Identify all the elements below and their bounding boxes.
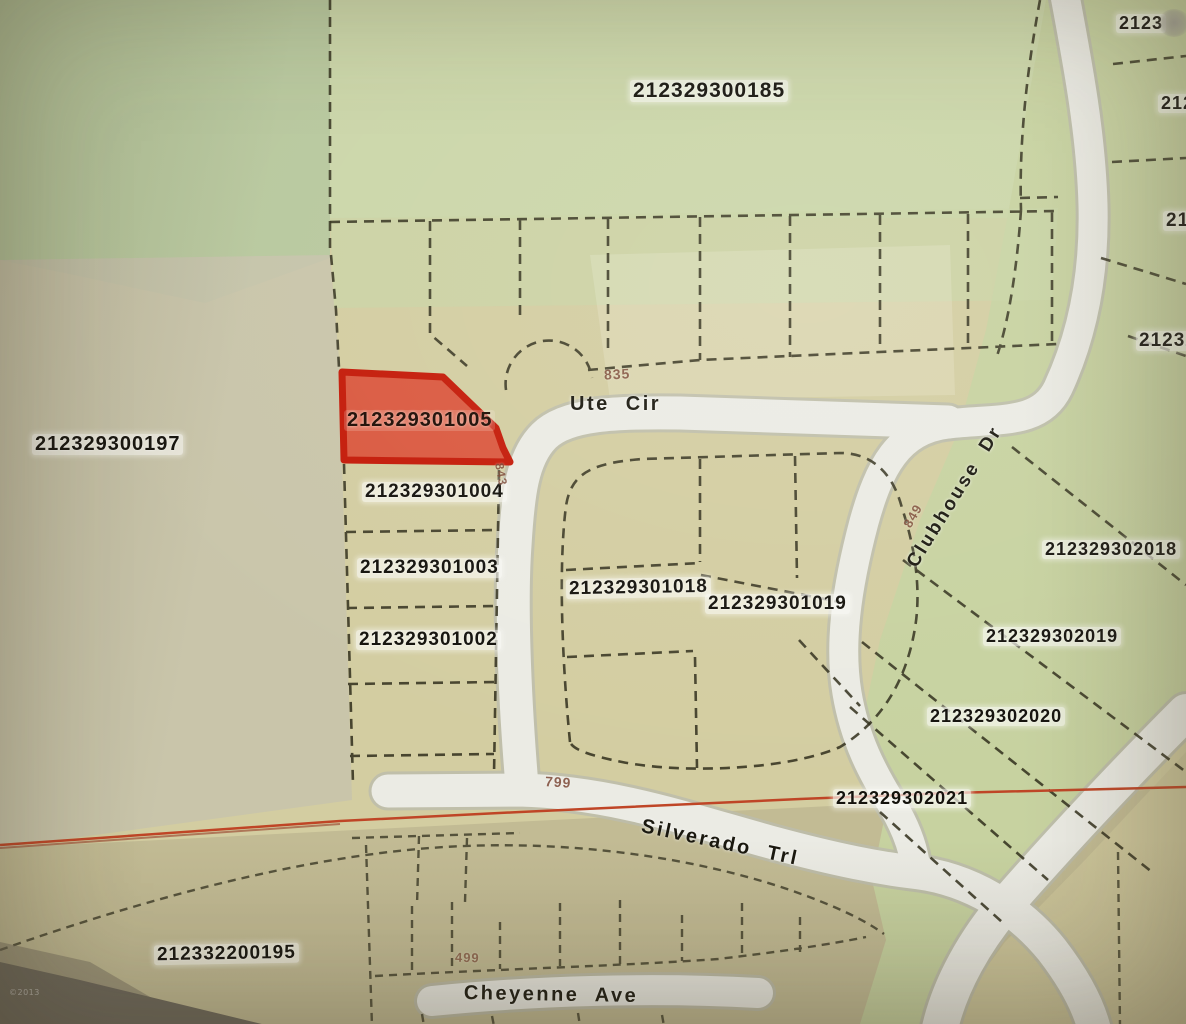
smudge-blob: [1158, 9, 1186, 37]
address-label-799: 799: [545, 774, 572, 790]
address-label-835: 835: [604, 366, 631, 382]
parcel-label-1003[interactable]: 212329301003: [357, 558, 502, 578]
parcel-label-197[interactable]: 212329300197: [32, 434, 183, 455]
glare-patch: [590, 245, 955, 400]
parcel-label-partial-tr3[interactable]: 21: [1163, 211, 1186, 231]
parcel-label-185[interactable]: 212329300185: [630, 80, 788, 102]
address-label-843: 843: [493, 462, 509, 487]
parcel-label-1002[interactable]: 212329301002: [356, 630, 501, 650]
parcel-label-1019[interactable]: 212329301019: [705, 594, 850, 614]
map-graphics: [0, 0, 1186, 1024]
parcel-label-2019[interactable]: 212329302019: [983, 627, 1121, 646]
parcel-label-1018[interactable]: 212329301018: [566, 577, 711, 599]
parcel-label-2020[interactable]: 212329302020: [927, 707, 1065, 726]
copyright-watermark: ©2013: [9, 988, 40, 997]
parcel-label-1005-highlighted[interactable]: 212329301005: [344, 410, 495, 431]
street-label-cheyenne-ave: Cheyenne Ave: [464, 983, 639, 1007]
region-left: [0, 255, 352, 848]
parcel-label-partial-tr4[interactable]: 21232: [1136, 331, 1186, 351]
parcel-label-2018[interactable]: 212329302018: [1042, 540, 1180, 559]
address-label-499: 499: [455, 951, 480, 965]
street-label-ute-cir: Ute Cir: [570, 394, 661, 415]
parcel-label-2021[interactable]: 212329302021: [833, 789, 971, 808]
parcel-label-195[interactable]: 212332200195: [154, 943, 299, 965]
parcel-map-canvas[interactable]: 212329300185 212329300197 212329301005 2…: [0, 0, 1186, 1024]
parcel-label-1004[interactable]: 212329301004: [362, 482, 507, 502]
parcel-label-partial-tr2[interactable]: 212: [1158, 94, 1186, 113]
